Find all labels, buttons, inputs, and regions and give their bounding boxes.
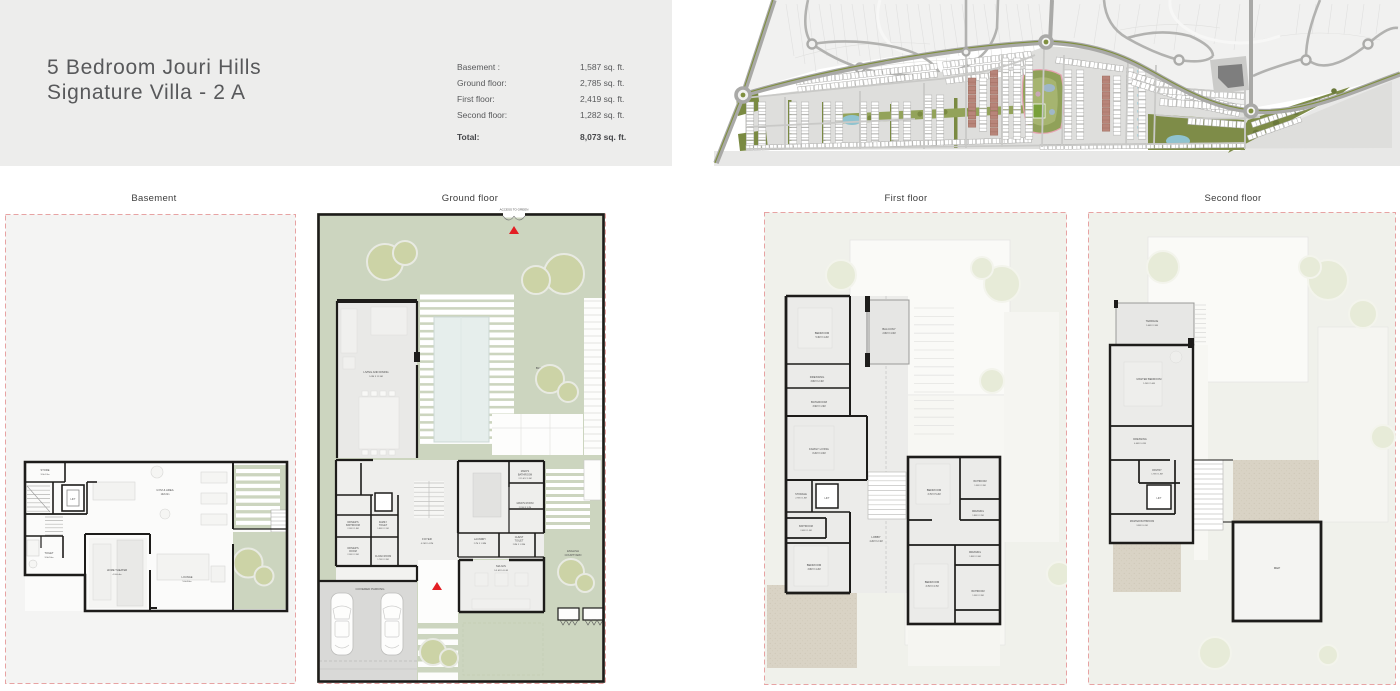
svg-text:BATHROOM: BATHROOM: [811, 400, 828, 404]
svg-text:3.8M X 4.2M: 3.8M X 4.2M: [807, 569, 820, 571]
svg-text:LIFT: LIFT: [1157, 497, 1162, 500]
svg-text:1.7M X 2.3M: 1.7M X 2.3M: [377, 559, 389, 561]
svg-text:1.9M X 2.3M: 1.9M X 2.3M: [972, 595, 984, 597]
svg-text:COURTYARD: COURTYARD: [565, 553, 582, 557]
svg-text:1.7M X 1.8M: 1.7M X 1.8M: [1151, 474, 1163, 476]
svg-text:3.8M X 2.4M: 3.8M X 2.4M: [810, 381, 823, 383]
svg-text:LIFT: LIFT: [71, 498, 76, 501]
svg-text:1.8M X 2.2M: 1.8M X 2.2M: [972, 515, 984, 517]
svg-text:DRESSING: DRESSING: [1133, 437, 1147, 441]
svg-text:DRESSING: DRESSING: [972, 511, 984, 513]
svg-text:3.9x2.6m: 3.9x2.6m: [45, 557, 54, 559]
svg-text:FAMILY LIVING: FAMILY LIVING: [809, 447, 829, 451]
svg-text:2.8M X 4.0M: 2.8M X 4.0M: [882, 333, 895, 335]
svg-text:2.8M X 1.35M: 2.8M X 1.35M: [513, 544, 526, 546]
svg-text:CLOAK ROOM: CLOAK ROOM: [375, 555, 391, 558]
svg-text:3.9M X 1.9M: 3.9M X 1.9M: [812, 406, 825, 408]
svg-text:1.8M X 2.1M: 1.8M X 2.1M: [377, 528, 389, 530]
svg-text:BATHROOM: BATHROOM: [799, 525, 813, 528]
svg-text:HOME THEATER: HOME THEATER: [107, 568, 127, 572]
svg-text:BATHROOM: BATHROOM: [518, 474, 532, 477]
svg-text:STORE: STORE: [41, 468, 50, 472]
svg-text:ACCESS TO GREEN: ACCESS TO GREEN: [500, 208, 529, 212]
svg-text:LAUNDRY: LAUNDRY: [474, 538, 486, 541]
svg-text:BALCONY: BALCONY: [882, 327, 896, 331]
svg-text:FOYER: FOYER: [422, 537, 432, 541]
svg-text:BEDROOM: BEDROOM: [807, 563, 822, 567]
svg-text:PANTRY: PANTRY: [1152, 469, 1162, 472]
svg-text:TOILET: TOILET: [515, 540, 524, 543]
svg-text:3.9M X 4.1M: 3.9M X 4.1M: [1136, 525, 1148, 527]
svg-text:5.3M X 4.2M: 5.3M X 4.2M: [815, 337, 828, 339]
svg-text:4.2M X 4.2M: 4.2M X 4.2M: [421, 543, 434, 545]
svg-text:COVERED PARKING: COVERED PARKING: [356, 587, 386, 591]
svg-text:1.8M X 2.0M: 1.8M X 2.0M: [969, 556, 981, 558]
svg-text:BATHROOM: BATHROOM: [346, 524, 360, 527]
svg-text:2.15 M X 1.8M: 2.15 M X 1.8M: [518, 478, 531, 480]
svg-text:3.7M X 5.2M: 3.7M X 5.2M: [927, 494, 940, 496]
svg-text:TOILET: TOILET: [379, 524, 388, 527]
svg-text:LOBBY: LOBBY: [871, 535, 880, 539]
svg-text:DRESSING: DRESSING: [810, 375, 825, 379]
svg-text:5.3M X 11.3M: 5.3M X 11.3M: [369, 376, 383, 378]
svg-text:1.9M X 2.3M: 1.9M X 2.3M: [974, 485, 986, 487]
svg-text:4.0M X 4.1M: 4.0M X 4.1M: [1134, 443, 1146, 445]
svg-text:MAJLIS: MAJLIS: [496, 564, 506, 568]
svg-text:LIFT: LIFT: [825, 497, 830, 500]
svg-text:BEDROOM: BEDROOM: [927, 488, 942, 492]
svg-text:MEP: MEP: [1274, 566, 1281, 570]
svg-text:10x6.9m: 10x6.9m: [161, 494, 170, 496]
svg-text:BEDROOM: BEDROOM: [815, 331, 830, 335]
svg-text:MASTER BATHROOM: MASTER BATHROOM: [1130, 520, 1154, 523]
svg-text:DRESSING: DRESSING: [969, 552, 981, 554]
svg-text:LOUNGE: LOUNGE: [182, 575, 193, 579]
svg-text:5.4M X 2.0M: 5.4M X 2.0M: [1146, 325, 1158, 327]
svg-text:ENGLISH: ENGLISH: [567, 549, 579, 553]
svg-text:2.1M X 2.9M: 2.1M X 2.9M: [347, 554, 359, 556]
svg-text:3.9x1.2m: 3.9x1.2m: [41, 474, 50, 476]
svg-text:TOILET: TOILET: [44, 551, 53, 555]
svg-text:STORAGE: STORAGE: [795, 493, 807, 496]
svg-text:4.2x5.4m: 4.2x5.4m: [113, 574, 122, 576]
svg-text:LIVING AND DINING: LIVING AND DINING: [363, 370, 388, 374]
svg-text:BEDROOM: BEDROOM: [925, 580, 940, 584]
svg-text:4.2M X 2.1M: 4.2M X 2.1M: [869, 541, 882, 543]
svg-text:8.2M X 4.0M: 8.2M X 4.0M: [812, 453, 825, 455]
svg-text:TERRACE: TERRACE: [1146, 319, 1159, 323]
svg-text:5.2M X 5.4M: 5.2M X 5.4M: [1143, 383, 1155, 385]
svg-text:2.1M X 1.8M: 2.1M X 1.8M: [347, 528, 359, 530]
svg-text:BATHROOM: BATHROOM: [973, 480, 986, 483]
svg-text:BATHROOM: BATHROOM: [971, 590, 984, 593]
svg-text:2.7M X 1.38M: 2.7M X 1.38M: [474, 543, 487, 545]
svg-text:2.0M X 1.9M: 2.0M X 1.9M: [800, 530, 812, 532]
svg-text:ROOM: ROOM: [349, 550, 356, 553]
svg-text:MASTER BEDROOM: MASTER BEDROOM: [1137, 377, 1162, 381]
svg-text:5.6x3.6m: 5.6x3.6m: [183, 581, 192, 583]
svg-text:MAID'S ROOM: MAID'S ROOM: [517, 502, 534, 505]
svg-text:GYM & AREA: GYM & AREA: [156, 488, 173, 492]
svg-text:2.7M X 1.8M: 2.7M X 1.8M: [795, 498, 807, 500]
svg-text:5.5 M X 4.0 M: 5.5 M X 4.0 M: [494, 570, 508, 572]
svg-text:3.7M X 3.7M: 3.7M X 3.7M: [925, 586, 938, 588]
